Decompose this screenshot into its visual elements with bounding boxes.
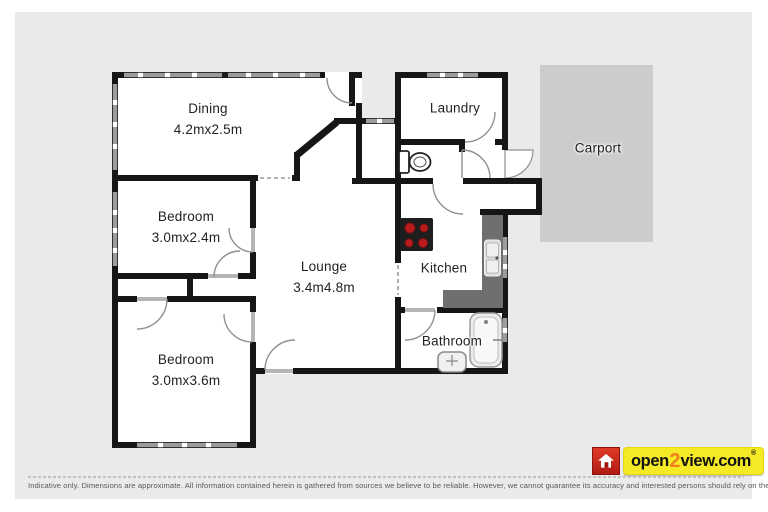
room-label-kitchen: Kitchen (421, 258, 467, 279)
logo-text-two: 2 (669, 450, 680, 473)
open2view-logo: open2view.com® (592, 447, 764, 475)
open2view-wordmark: open2view.com® (623, 447, 764, 475)
house-icon (596, 451, 616, 471)
open2view-house-icon (592, 447, 620, 475)
room-label-bathroom: Bathroom (422, 331, 482, 352)
room-name: Carport (575, 138, 621, 159)
room-name: Bedroom (152, 349, 221, 370)
footer-disclaimer: Indicative only. Dimensions are approxim… (28, 481, 746, 490)
room-dims: 4.2mx2.5m (174, 119, 243, 140)
floorplan-page: Dining 4.2mx2.5m Laundry Carport Bedroom… (0, 0, 768, 512)
room-name: Lounge (293, 256, 355, 277)
floorplan-drawing (0, 0, 768, 512)
logo-text-open: open (631, 452, 669, 471)
room-label-bedroom2: Bedroom 3.0mx3.6m (152, 349, 221, 391)
room-name: Bathroom (422, 331, 482, 352)
room-label-carport: Carport (575, 138, 621, 159)
bathroom-sink-icon (438, 352, 466, 372)
room-label-laundry: Laundry (430, 98, 480, 119)
room-label-bedroom1: Bedroom 3.0mx2.4m (152, 206, 221, 248)
room-dims: 3.0mx3.6m (152, 370, 221, 391)
room-name: Kitchen (421, 258, 467, 279)
room-label-lounge: Lounge 3.4m4.8m (293, 256, 355, 298)
toilet-icon (399, 151, 431, 173)
kitchen-sink-icon (485, 240, 501, 276)
room-label-dining: Dining 4.2mx2.5m (174, 98, 243, 140)
room-dims: 3.4m4.8m (293, 277, 355, 298)
logo-text-view: view.com (680, 452, 750, 471)
room-name: Bedroom (152, 206, 221, 227)
room-dims: 3.0mx2.4m (152, 227, 221, 248)
stove-icon (400, 218, 433, 251)
room-name: Dining (174, 98, 243, 119)
registered-trademark-icon: ® (751, 450, 756, 457)
room-name: Laundry (430, 98, 480, 119)
